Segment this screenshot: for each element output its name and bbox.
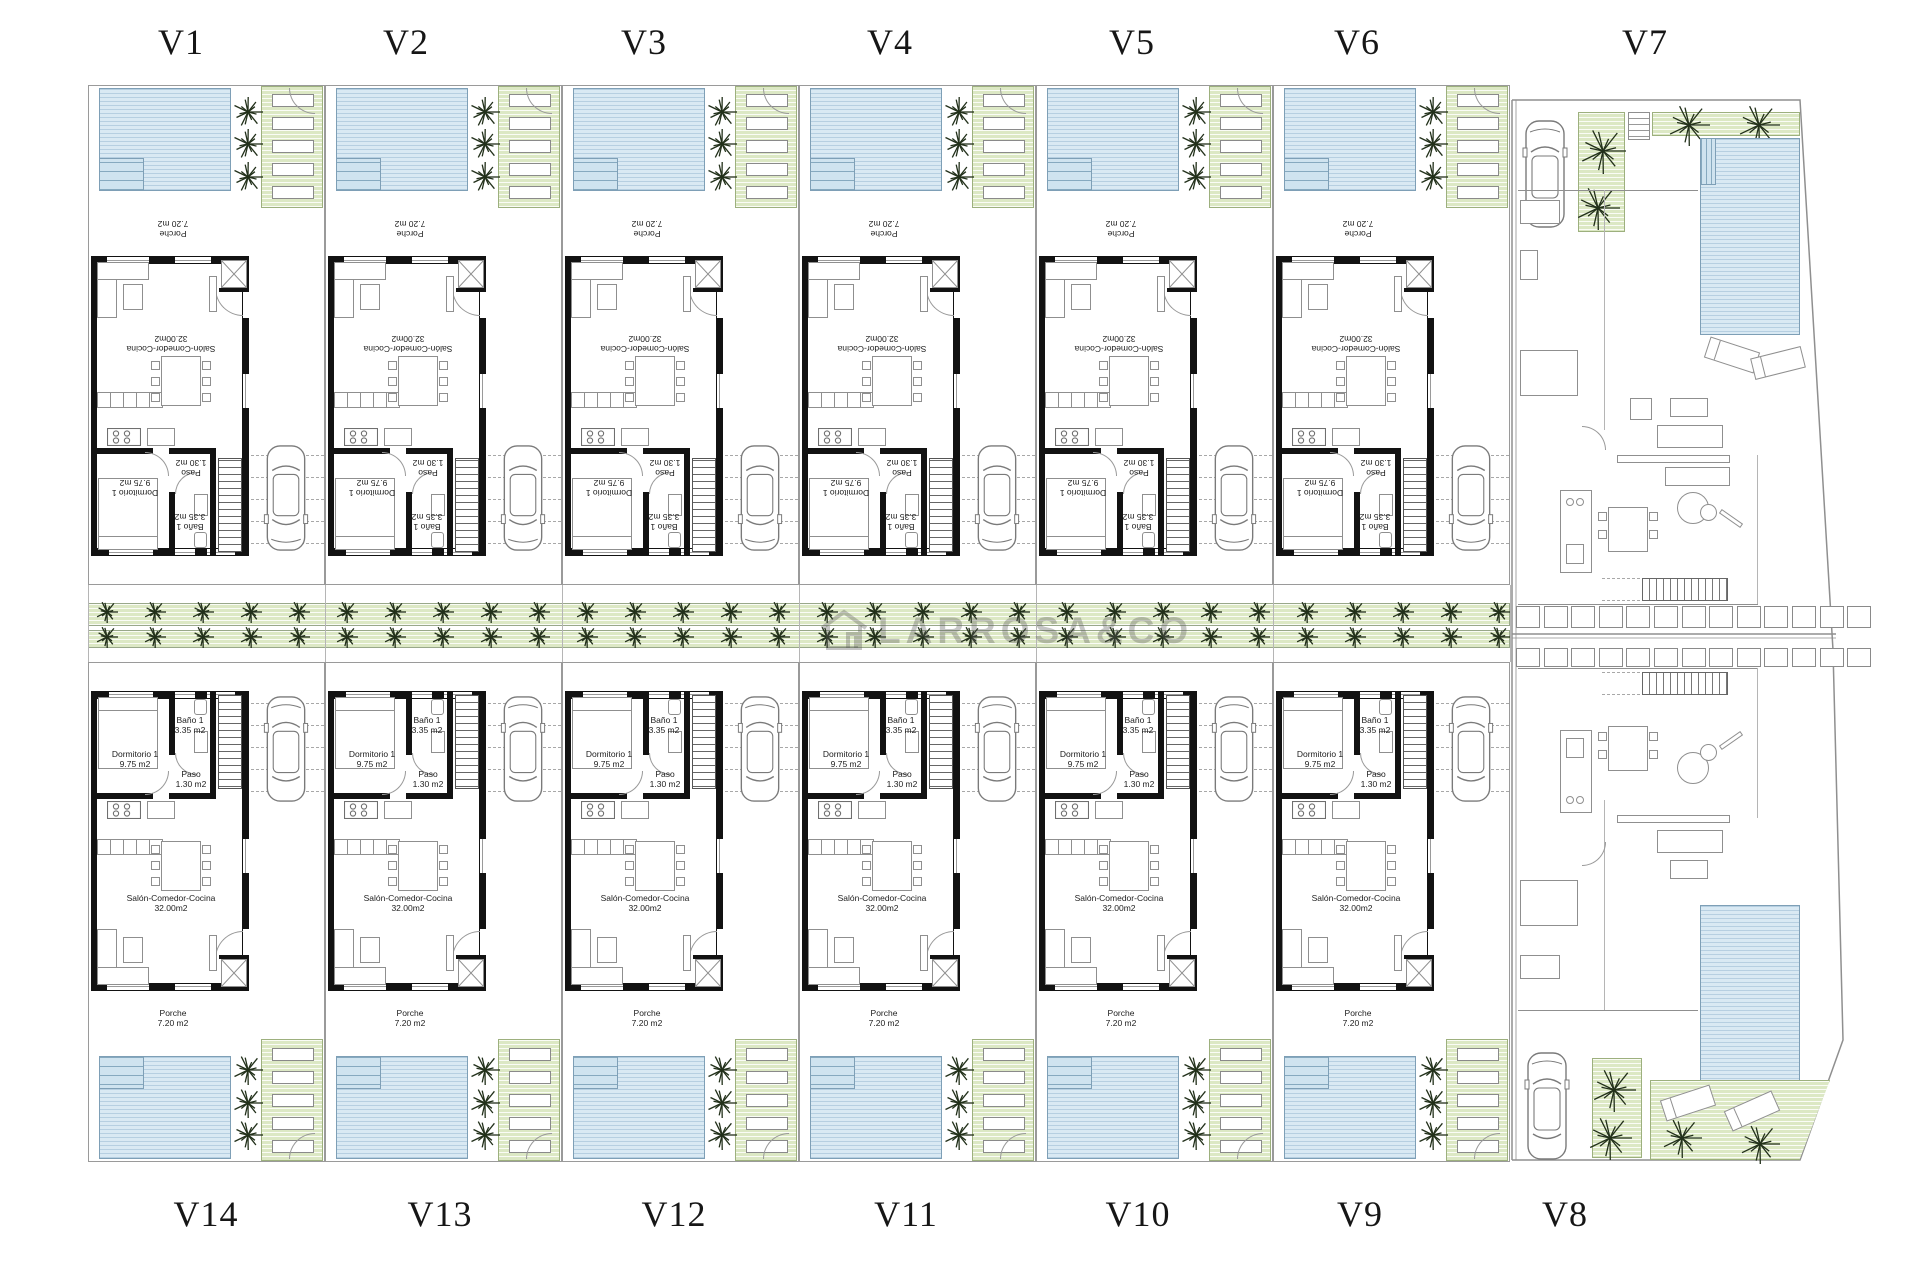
palm-tree-icon bbox=[336, 626, 358, 653]
coffee-table bbox=[1308, 284, 1328, 310]
unit-label-v10: V10 bbox=[1106, 1193, 1171, 1235]
window-icon bbox=[717, 839, 723, 873]
palm-tree-icon bbox=[1344, 601, 1366, 628]
villa-plot-v10: Dormitorio 19.75 m2 Baño 13.35 m2 Paso1.… bbox=[1036, 662, 1273, 1162]
chair bbox=[1387, 393, 1396, 402]
room-label-paso: Paso1.30 m2 bbox=[1361, 769, 1392, 789]
room-label-dormitorio: Dormitorio 19.75 m2 bbox=[1297, 749, 1343, 769]
palm-tree-icon bbox=[288, 626, 310, 653]
sofa bbox=[1045, 262, 1097, 280]
palm-tree-icon bbox=[144, 626, 166, 653]
toilet bbox=[1379, 699, 1392, 715]
kitchen-counter bbox=[621, 428, 649, 446]
chair bbox=[625, 377, 634, 386]
chair bbox=[862, 377, 871, 386]
palm-tree-icon bbox=[707, 157, 737, 192]
coffee-table bbox=[834, 937, 854, 963]
coffee-table bbox=[1308, 937, 1328, 963]
palm-tree-icon bbox=[768, 601, 790, 628]
terrace-tile bbox=[1571, 606, 1595, 628]
palm-tree-icon bbox=[1392, 626, 1414, 653]
wardrobe bbox=[695, 260, 721, 288]
toilet bbox=[1379, 532, 1392, 548]
chair bbox=[1336, 845, 1345, 854]
stairs-void bbox=[1602, 672, 1640, 673]
chair bbox=[1336, 361, 1345, 370]
unit-label-v5: V5 bbox=[1109, 21, 1155, 63]
chair bbox=[676, 361, 685, 370]
sideboard bbox=[1617, 815, 1730, 823]
room-label-paso: Paso1.30 m2 bbox=[413, 458, 444, 478]
stairs bbox=[929, 458, 953, 552]
palm-tree-icon bbox=[96, 626, 118, 653]
stove-icon bbox=[1292, 801, 1326, 819]
wardrobe bbox=[221, 260, 247, 288]
window-icon bbox=[175, 257, 211, 263]
chair bbox=[151, 361, 160, 370]
watermark-text: LARROSA&CO bbox=[878, 610, 1193, 652]
room-label-salon: Salón-Comedor-Cocina32.00m2 bbox=[127, 334, 216, 354]
stove-icon bbox=[107, 801, 141, 819]
terrace-tile bbox=[1626, 648, 1650, 667]
room-label-paso: Paso1.30 m2 bbox=[176, 769, 207, 789]
room-label-bano: Baño 13.35 m2 bbox=[886, 512, 917, 532]
chair bbox=[862, 845, 871, 854]
coffee-table bbox=[834, 284, 854, 310]
terrace-tile bbox=[1516, 606, 1540, 628]
palm-tree-icon bbox=[1418, 124, 1448, 159]
chair bbox=[1099, 377, 1108, 386]
stairs bbox=[692, 458, 716, 552]
bed-pillow bbox=[572, 536, 632, 550]
kitchen-counter bbox=[1332, 428, 1360, 446]
sofa bbox=[808, 967, 860, 985]
chair bbox=[1099, 845, 1108, 854]
bedroom-door-arc bbox=[1330, 452, 1354, 476]
chair bbox=[202, 393, 211, 402]
sofa bbox=[571, 262, 623, 280]
room-label-paso: Paso1.30 m2 bbox=[887, 458, 918, 478]
palm-tree-icon bbox=[96, 601, 118, 628]
chair bbox=[625, 393, 634, 402]
window-icon bbox=[649, 257, 685, 263]
palm-tree-icon bbox=[1181, 92, 1211, 127]
house-floorplan: Dormitorio 19.75 m2 Baño 13.35 m2 Paso1.… bbox=[565, 256, 723, 556]
chair bbox=[202, 877, 211, 886]
palm-tree-icon bbox=[672, 601, 694, 628]
chair bbox=[439, 877, 448, 886]
dining-table bbox=[872, 841, 912, 891]
palm-tree-icon bbox=[384, 601, 406, 628]
room-label-paso: Paso1.30 m2 bbox=[1124, 458, 1155, 478]
room-label-porche: Porche7.20 m2 bbox=[632, 219, 663, 239]
terrace-tile bbox=[1682, 606, 1706, 628]
chair bbox=[151, 877, 160, 886]
palm-tree-icon bbox=[233, 1120, 263, 1155]
car-icon bbox=[1211, 443, 1257, 553]
palm-tree-icon bbox=[1662, 1118, 1702, 1163]
chair bbox=[676, 877, 685, 886]
kitchen-counter bbox=[621, 801, 649, 819]
chair bbox=[625, 861, 634, 870]
chair bbox=[625, 845, 634, 854]
kitchen-counter bbox=[1095, 801, 1123, 819]
car-icon bbox=[500, 694, 546, 804]
palm-tree-icon bbox=[233, 1055, 263, 1090]
chair bbox=[1649, 530, 1658, 539]
sofa bbox=[334, 262, 386, 280]
palm-tree-icon bbox=[1181, 1120, 1211, 1155]
house-floorplan: Dormitorio 19.75 m2 Baño 13.35 m2 Paso1.… bbox=[565, 691, 723, 991]
bed-pillow bbox=[1283, 536, 1343, 550]
toilet bbox=[431, 699, 444, 715]
tv-unit bbox=[446, 276, 454, 312]
sofa bbox=[97, 262, 149, 280]
bed bbox=[1520, 350, 1578, 396]
tv-unit bbox=[1157, 935, 1165, 971]
stove-burner bbox=[1576, 498, 1584, 506]
terrace-tile bbox=[1847, 648, 1871, 667]
room-label-dormitorio: Dormitorio 19.75 m2 bbox=[823, 478, 869, 498]
palm-tree-icon bbox=[1296, 601, 1318, 628]
palm-tree-icon bbox=[1344, 626, 1366, 653]
chair bbox=[1099, 393, 1108, 402]
unit-label-v2: V2 bbox=[383, 21, 429, 63]
terrace-tile bbox=[1626, 606, 1650, 628]
room-label-dormitorio: Dormitorio 19.75 m2 bbox=[112, 478, 158, 498]
chair bbox=[913, 861, 922, 870]
kitchen-counter bbox=[384, 801, 412, 819]
wardrobe bbox=[1520, 200, 1560, 224]
palm-tree-icon bbox=[233, 1088, 263, 1123]
coffee-table bbox=[1071, 284, 1091, 310]
chair bbox=[388, 845, 397, 854]
chair bbox=[1150, 361, 1159, 370]
stove-icon bbox=[344, 801, 378, 819]
stove-icon bbox=[107, 428, 141, 446]
kitchen-counter bbox=[858, 801, 886, 819]
room-label-porche: Porche7.20 m2 bbox=[1106, 219, 1137, 239]
stairs-void bbox=[1602, 694, 1640, 695]
window-icon bbox=[1360, 984, 1396, 990]
dining-table bbox=[1608, 726, 1648, 771]
chair bbox=[202, 845, 211, 854]
palm-tree-icon bbox=[1248, 601, 1270, 628]
terrace-tile bbox=[1847, 606, 1871, 628]
stove-burner bbox=[1566, 498, 1574, 506]
chair bbox=[151, 393, 160, 402]
chair bbox=[202, 361, 211, 370]
house-floorplan: Dormitorio 19.75 m2 Baño 13.35 m2 Paso1.… bbox=[1039, 256, 1197, 556]
palm-tree-icon bbox=[707, 124, 737, 159]
stove-icon bbox=[1292, 428, 1326, 446]
coffee-table bbox=[597, 284, 617, 310]
chair bbox=[862, 861, 871, 870]
house-floorplan: Dormitorio 19.75 m2 Baño 13.35 m2 Paso1.… bbox=[91, 256, 249, 556]
unit-label-v11: V11 bbox=[874, 1193, 938, 1235]
coffee-table bbox=[360, 937, 380, 963]
wardrobe bbox=[1520, 955, 1560, 979]
stairs bbox=[218, 458, 242, 552]
sofa bbox=[571, 967, 623, 985]
palm-tree-icon bbox=[233, 92, 263, 127]
terrace-tile bbox=[1737, 606, 1761, 628]
palm-tree-icon bbox=[576, 601, 598, 628]
window-icon bbox=[480, 374, 486, 408]
bed-pillow bbox=[98, 536, 158, 550]
car-icon bbox=[263, 443, 309, 553]
front-door-arc bbox=[926, 288, 954, 316]
chair bbox=[1649, 750, 1658, 759]
chair bbox=[151, 861, 160, 870]
stove-burner bbox=[1576, 796, 1584, 804]
house-floorplan: Dormitorio 19.75 m2 Baño 13.35 m2 Paso1.… bbox=[91, 691, 249, 991]
room-label-dormitorio: Dormitorio 19.75 m2 bbox=[586, 478, 632, 498]
terrace-tile bbox=[1709, 648, 1733, 667]
pool-steps bbox=[573, 158, 618, 191]
room-label-bano: Baño 13.35 m2 bbox=[1123, 715, 1154, 735]
window-icon bbox=[1123, 984, 1159, 990]
palm-tree-icon bbox=[470, 92, 500, 127]
villa-plot-v13: Dormitorio 19.75 m2 Baño 13.35 m2 Paso1.… bbox=[325, 662, 562, 1162]
palm-tree-icon bbox=[944, 124, 974, 159]
room-label-bano: Baño 13.35 m2 bbox=[1360, 512, 1391, 532]
palm-tree-icon bbox=[944, 1088, 974, 1123]
kitchen-counter bbox=[1332, 801, 1360, 819]
car-icon bbox=[500, 443, 546, 553]
wardrobe bbox=[1169, 959, 1195, 987]
room-label-paso: Paso1.30 m2 bbox=[650, 458, 681, 478]
tv-unit bbox=[920, 276, 928, 312]
bedroom-door-arc bbox=[382, 771, 406, 795]
plot-boundary-line bbox=[1273, 585, 1274, 662]
chair bbox=[202, 377, 211, 386]
palm-tree-icon bbox=[1181, 1055, 1211, 1090]
wardrobe bbox=[932, 959, 958, 987]
palm-tree-icon bbox=[672, 626, 694, 653]
window-icon bbox=[954, 839, 960, 873]
palm-tree-icon bbox=[707, 1088, 737, 1123]
stairs bbox=[1642, 672, 1728, 695]
pool-steps bbox=[336, 1056, 381, 1089]
kitchen-counter bbox=[384, 428, 412, 446]
terrace-tile bbox=[1516, 648, 1540, 667]
car-icon bbox=[1448, 443, 1494, 553]
coffee-table bbox=[1670, 398, 1708, 417]
palm-tree-icon bbox=[944, 157, 974, 192]
chair bbox=[625, 361, 634, 370]
room-label-salon: Salón-Comedor-Cocina32.00m2 bbox=[838, 893, 927, 913]
armchair bbox=[1630, 398, 1652, 420]
front-door-arc bbox=[689, 288, 717, 316]
dining-table bbox=[161, 356, 201, 406]
palm-tree-icon bbox=[470, 124, 500, 159]
bed-pillow bbox=[1046, 697, 1106, 711]
pool-steps bbox=[99, 1056, 144, 1089]
round-chair bbox=[1700, 744, 1717, 761]
coffee-table bbox=[1670, 860, 1708, 879]
chair bbox=[151, 377, 160, 386]
chair bbox=[388, 861, 397, 870]
plot-boundary-line bbox=[562, 585, 563, 662]
street bbox=[88, 585, 1510, 662]
toilet bbox=[668, 532, 681, 548]
villa-plot-v1: Dormitorio 19.75 m2 Baño 13.35 m2 Paso1.… bbox=[88, 85, 325, 585]
tv-unit bbox=[683, 276, 691, 312]
palm-tree-icon bbox=[470, 157, 500, 192]
toilet bbox=[905, 532, 918, 548]
stove-icon bbox=[1055, 428, 1089, 446]
palm-tree-icon bbox=[240, 601, 262, 628]
palm-tree-icon bbox=[288, 601, 310, 628]
palm-tree-icon bbox=[144, 601, 166, 628]
room-label-bano: Baño 13.35 m2 bbox=[1123, 512, 1154, 532]
window-icon bbox=[243, 374, 249, 408]
stairs bbox=[1166, 695, 1190, 789]
chair bbox=[1099, 861, 1108, 870]
window-icon bbox=[1360, 257, 1396, 263]
room-label-paso: Paso1.30 m2 bbox=[413, 769, 444, 789]
room-label-bano: Baño 13.35 m2 bbox=[1360, 715, 1391, 735]
palm-tree-icon bbox=[1592, 1068, 1636, 1117]
car-icon bbox=[263, 694, 309, 804]
palm-tree-icon bbox=[336, 601, 358, 628]
toilet bbox=[668, 699, 681, 715]
palm-tree-icon bbox=[240, 626, 262, 653]
stairs bbox=[218, 695, 242, 789]
chair bbox=[1598, 530, 1607, 539]
stairs-void bbox=[1602, 578, 1640, 579]
chair bbox=[202, 861, 211, 870]
palm-tree-icon bbox=[528, 601, 550, 628]
sofa bbox=[1657, 425, 1723, 448]
room-label-salon: Salón-Comedor-Cocina32.00m2 bbox=[1075, 893, 1164, 913]
palm-tree-icon bbox=[1418, 1055, 1448, 1090]
chair bbox=[1387, 861, 1396, 870]
palm-tree-icon bbox=[1181, 157, 1211, 192]
room-label-dormitorio: Dormitorio 19.75 m2 bbox=[586, 749, 632, 769]
palm-tree-icon bbox=[480, 601, 502, 628]
palm-tree-icon bbox=[1418, 1120, 1448, 1155]
room-label-paso: Paso1.30 m2 bbox=[650, 769, 681, 789]
chair bbox=[676, 377, 685, 386]
terrace-tile bbox=[1792, 648, 1816, 667]
room-label-salon: Salón-Comedor-Cocina32.00m2 bbox=[1312, 893, 1401, 913]
room-label-paso: Paso1.30 m2 bbox=[1124, 769, 1155, 789]
room-label-bano: Baño 13.35 m2 bbox=[412, 715, 443, 735]
wardrobe bbox=[221, 959, 247, 987]
site-plan: V1 V2 V3 V4 V5 V6 V7 V14 V13 V12 V11 V10… bbox=[0, 0, 1920, 1280]
tv-unit bbox=[1394, 935, 1402, 971]
bedroom-door-arc bbox=[619, 771, 643, 795]
kitchen-counter bbox=[147, 801, 175, 819]
palm-tree-icon bbox=[1588, 1116, 1632, 1165]
chair bbox=[1150, 377, 1159, 386]
house-floorplan: Dormitorio 19.75 m2 Baño 13.35 m2 Paso1.… bbox=[1276, 691, 1434, 991]
room-label-porche: Porche7.20 m2 bbox=[395, 1008, 426, 1028]
plot-boundary-line bbox=[325, 585, 326, 662]
chair bbox=[388, 377, 397, 386]
chair bbox=[388, 393, 397, 402]
chair bbox=[1099, 877, 1108, 886]
terrace-tile bbox=[1599, 648, 1623, 667]
bed-pillow bbox=[335, 536, 395, 550]
bed-pillow bbox=[809, 536, 869, 550]
room-label-porche: Porche7.20 m2 bbox=[869, 1008, 900, 1028]
chair bbox=[1598, 732, 1607, 741]
pool-steps bbox=[810, 1056, 855, 1089]
palm-tree-icon bbox=[720, 601, 742, 628]
room-label-salon: Salón-Comedor-Cocina32.00m2 bbox=[127, 893, 216, 913]
kitchen-counter bbox=[147, 428, 175, 446]
coffee-table bbox=[123, 284, 143, 310]
palm-tree-icon bbox=[1576, 186, 1620, 235]
terrace-tile bbox=[1544, 648, 1568, 667]
room-label-dormitorio: Dormitorio 19.75 m2 bbox=[1060, 749, 1106, 769]
room-label-bano: Baño 13.35 m2 bbox=[175, 512, 206, 532]
house-floorplan: Dormitorio 19.75 m2 Baño 13.35 m2 Paso1.… bbox=[328, 691, 486, 991]
stove-icon bbox=[818, 428, 852, 446]
palm-tree-icon bbox=[1418, 92, 1448, 127]
house-floorplan: Dormitorio 19.75 m2 Baño 13.35 m2 Paso1.… bbox=[1276, 256, 1434, 556]
terrace-tile bbox=[1792, 606, 1816, 628]
dining-table bbox=[1346, 841, 1386, 891]
bedroom-door-arc bbox=[1093, 452, 1117, 476]
palm-tree-icon bbox=[432, 626, 454, 653]
stairs bbox=[692, 695, 716, 789]
bedroom-door-arc bbox=[382, 452, 406, 476]
room-label-porche: Porche7.20 m2 bbox=[632, 1008, 663, 1028]
room-label-salon: Salón-Comedor-Cocina32.00m2 bbox=[364, 334, 453, 354]
bedroom-door-arc bbox=[1330, 771, 1354, 795]
room-label-porche: Porche7.20 m2 bbox=[1106, 1008, 1137, 1028]
pool-steps bbox=[1284, 1056, 1329, 1089]
palm-tree-icon bbox=[1181, 124, 1211, 159]
room-label-salon: Salón-Comedor-Cocina32.00m2 bbox=[1312, 334, 1401, 354]
unit-label-v8: V8 bbox=[1542, 1193, 1588, 1235]
sofa bbox=[334, 967, 386, 985]
coffee-table bbox=[123, 937, 143, 963]
palm-tree-icon bbox=[1248, 626, 1270, 653]
villa-plot-v11: Dormitorio 19.75 m2 Baño 13.35 m2 Paso1.… bbox=[799, 662, 1036, 1162]
entry-step bbox=[1628, 112, 1650, 140]
toilet bbox=[194, 699, 207, 715]
car-icon bbox=[1211, 694, 1257, 804]
toilet bbox=[1142, 532, 1155, 548]
kitchen-counter bbox=[1095, 428, 1123, 446]
toilet bbox=[1142, 699, 1155, 715]
unit-label-v6: V6 bbox=[1334, 21, 1380, 63]
dining-table bbox=[635, 841, 675, 891]
unit-label-v13: V13 bbox=[408, 1193, 473, 1235]
chair bbox=[1649, 732, 1658, 741]
unit-label-v9: V9 bbox=[1337, 1193, 1383, 1235]
room-label-dormitorio: Dormitorio 19.75 m2 bbox=[349, 749, 395, 769]
wardrobe bbox=[458, 959, 484, 987]
sofa bbox=[1657, 830, 1723, 853]
window-icon bbox=[886, 984, 922, 990]
terrace-tile bbox=[1544, 606, 1568, 628]
stairs bbox=[1166, 458, 1190, 552]
wardrobe bbox=[1406, 959, 1432, 987]
palm-tree-icon bbox=[192, 601, 214, 628]
dining-table bbox=[398, 356, 438, 406]
stairs bbox=[1403, 458, 1427, 552]
villa-plot-v12: Dormitorio 19.75 m2 Baño 13.35 m2 Paso1.… bbox=[562, 662, 799, 1162]
terrace-tile bbox=[1709, 606, 1733, 628]
stairs bbox=[1642, 578, 1728, 601]
stove-burner bbox=[1566, 796, 1574, 804]
